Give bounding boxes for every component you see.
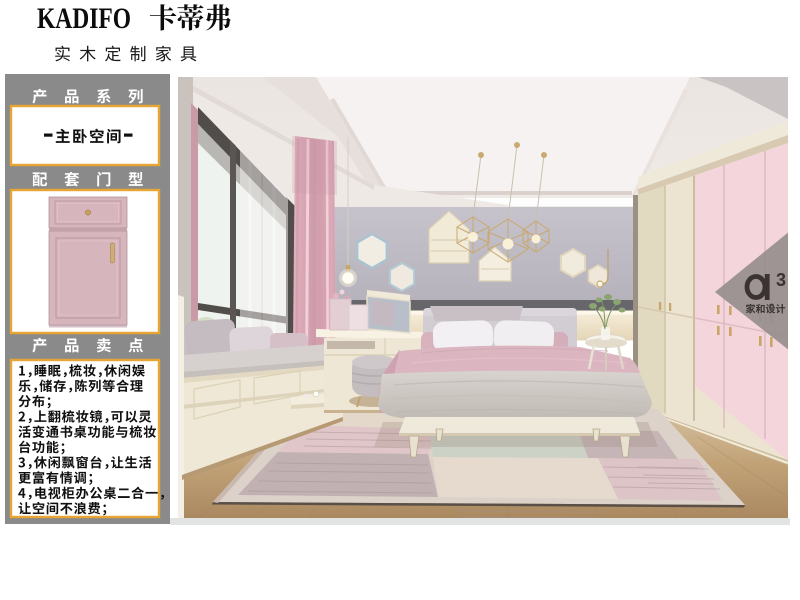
svg-text:3: 3 xyxy=(776,270,786,290)
svg-text:KADIFO: KADIFO xyxy=(37,2,131,35)
